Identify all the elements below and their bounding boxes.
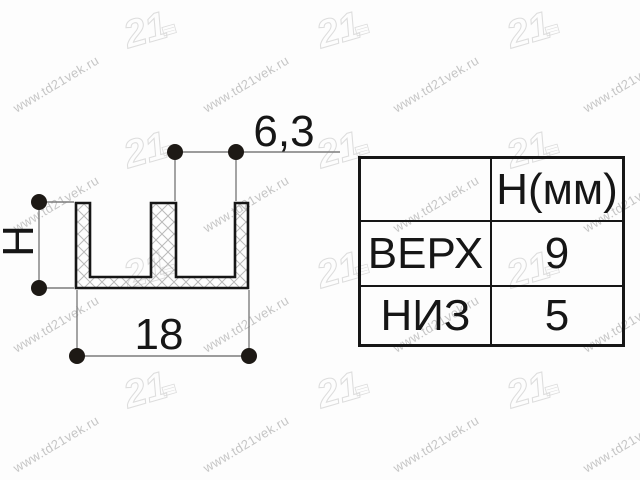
table-header-item: [361, 159, 490, 220]
height-dim-label: H: [0, 225, 43, 257]
dim-bottom-width-label: 18: [135, 310, 184, 359]
table-row-verh-label: ВЕРХ: [361, 220, 490, 285]
profile-cross-section: [76, 203, 248, 288]
size-table: Н(мм) ВЕРХ 9 НИЗ 5: [358, 156, 625, 347]
table-row-verh-value: 9: [490, 220, 622, 285]
table-row-niz-value: 5: [490, 285, 622, 344]
product-drawing-canvas: 21 www.td21vek.ru www.td21vek.ru www.td2…: [0, 0, 640, 480]
table-header-h-mm: Н(мм): [490, 159, 622, 220]
dim-top-width-label: 6,3: [253, 107, 314, 156]
table-row-niz-label: НИЗ: [361, 285, 490, 344]
